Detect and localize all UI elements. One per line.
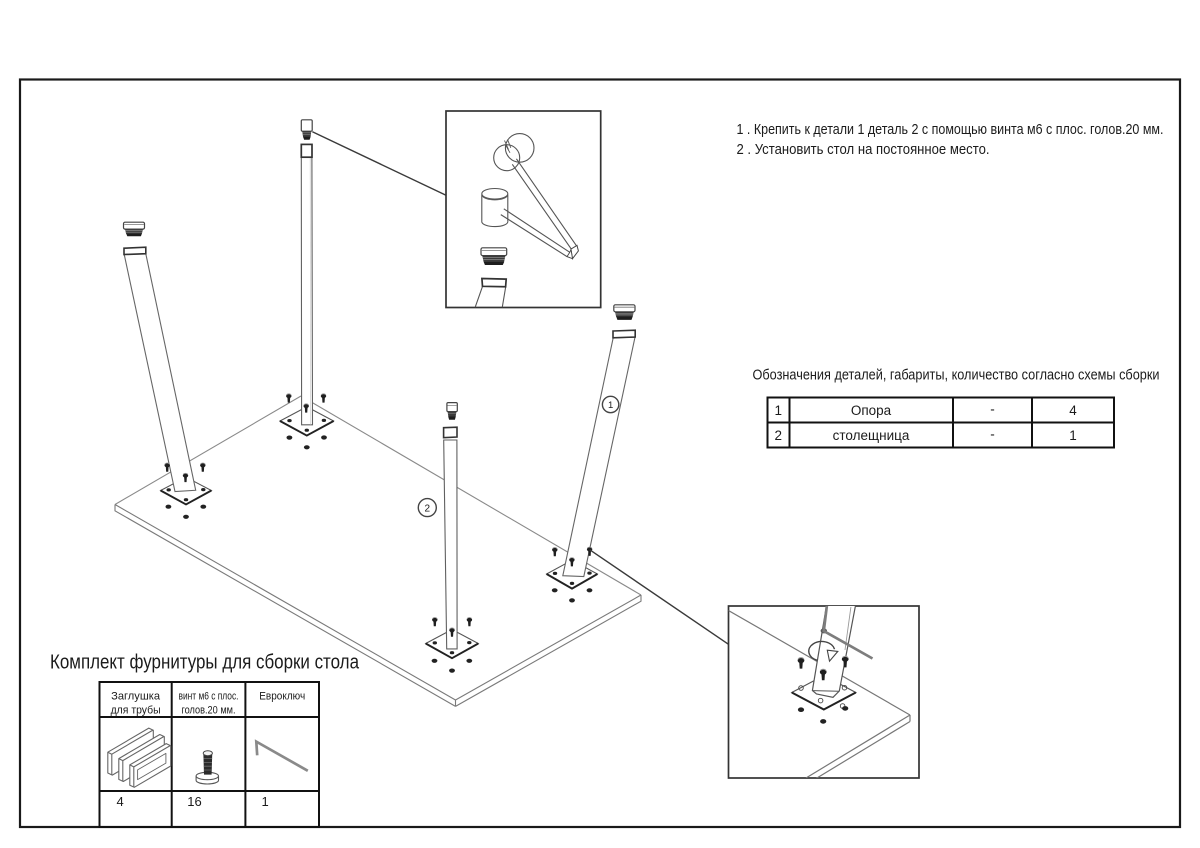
svg-text:2 . Установить стол на постоян: 2 . Установить стол на постоянное место.	[737, 141, 990, 158]
svg-text:Комплект фурнитуры для сборки: Комплект фурнитуры для сборки стола	[50, 651, 359, 674]
svg-text:4: 4	[117, 794, 124, 809]
svg-text:винт м6 с плос.: винт м6 с плос.	[179, 691, 239, 703]
svg-text:-: -	[990, 427, 995, 442]
svg-text:2: 2	[425, 503, 431, 514]
svg-text:Опора: Опора	[851, 403, 892, 418]
svg-text:4: 4	[1069, 403, 1077, 418]
svg-text:1: 1	[1069, 428, 1077, 443]
svg-text:2: 2	[775, 428, 783, 443]
svg-text:Заглушка: Заглушка	[111, 691, 161, 703]
svg-text:16: 16	[187, 794, 201, 809]
svg-text:Евроключ: Евроключ	[259, 691, 305, 703]
svg-text:для трубы: для трубы	[111, 705, 161, 717]
svg-text:-: -	[990, 402, 995, 417]
svg-text:1: 1	[608, 400, 613, 411]
svg-text:голов.20 мм.: голов.20 мм.	[182, 705, 236, 717]
svg-text:Обозначения деталей, габариты,: Обозначения деталей, габариты, количеств…	[753, 367, 1160, 384]
svg-text:1: 1	[775, 403, 783, 418]
svg-text:столещница: столещница	[833, 428, 910, 443]
svg-text:1 . Крепить к детали 1 деталь: 1 . Крепить к детали 1 деталь 2 с помощь…	[737, 121, 1164, 138]
svg-text:1: 1	[262, 794, 269, 809]
